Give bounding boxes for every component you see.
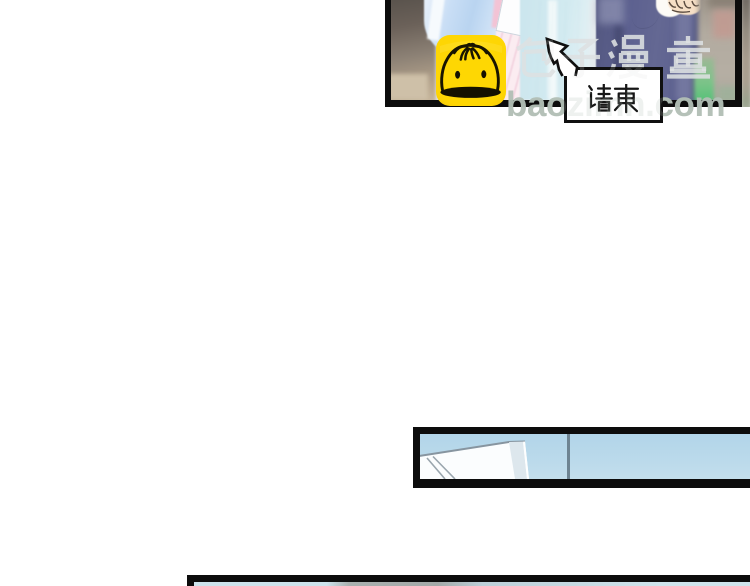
svg-text:baozimh.com: baozimh.com [506, 85, 725, 123]
